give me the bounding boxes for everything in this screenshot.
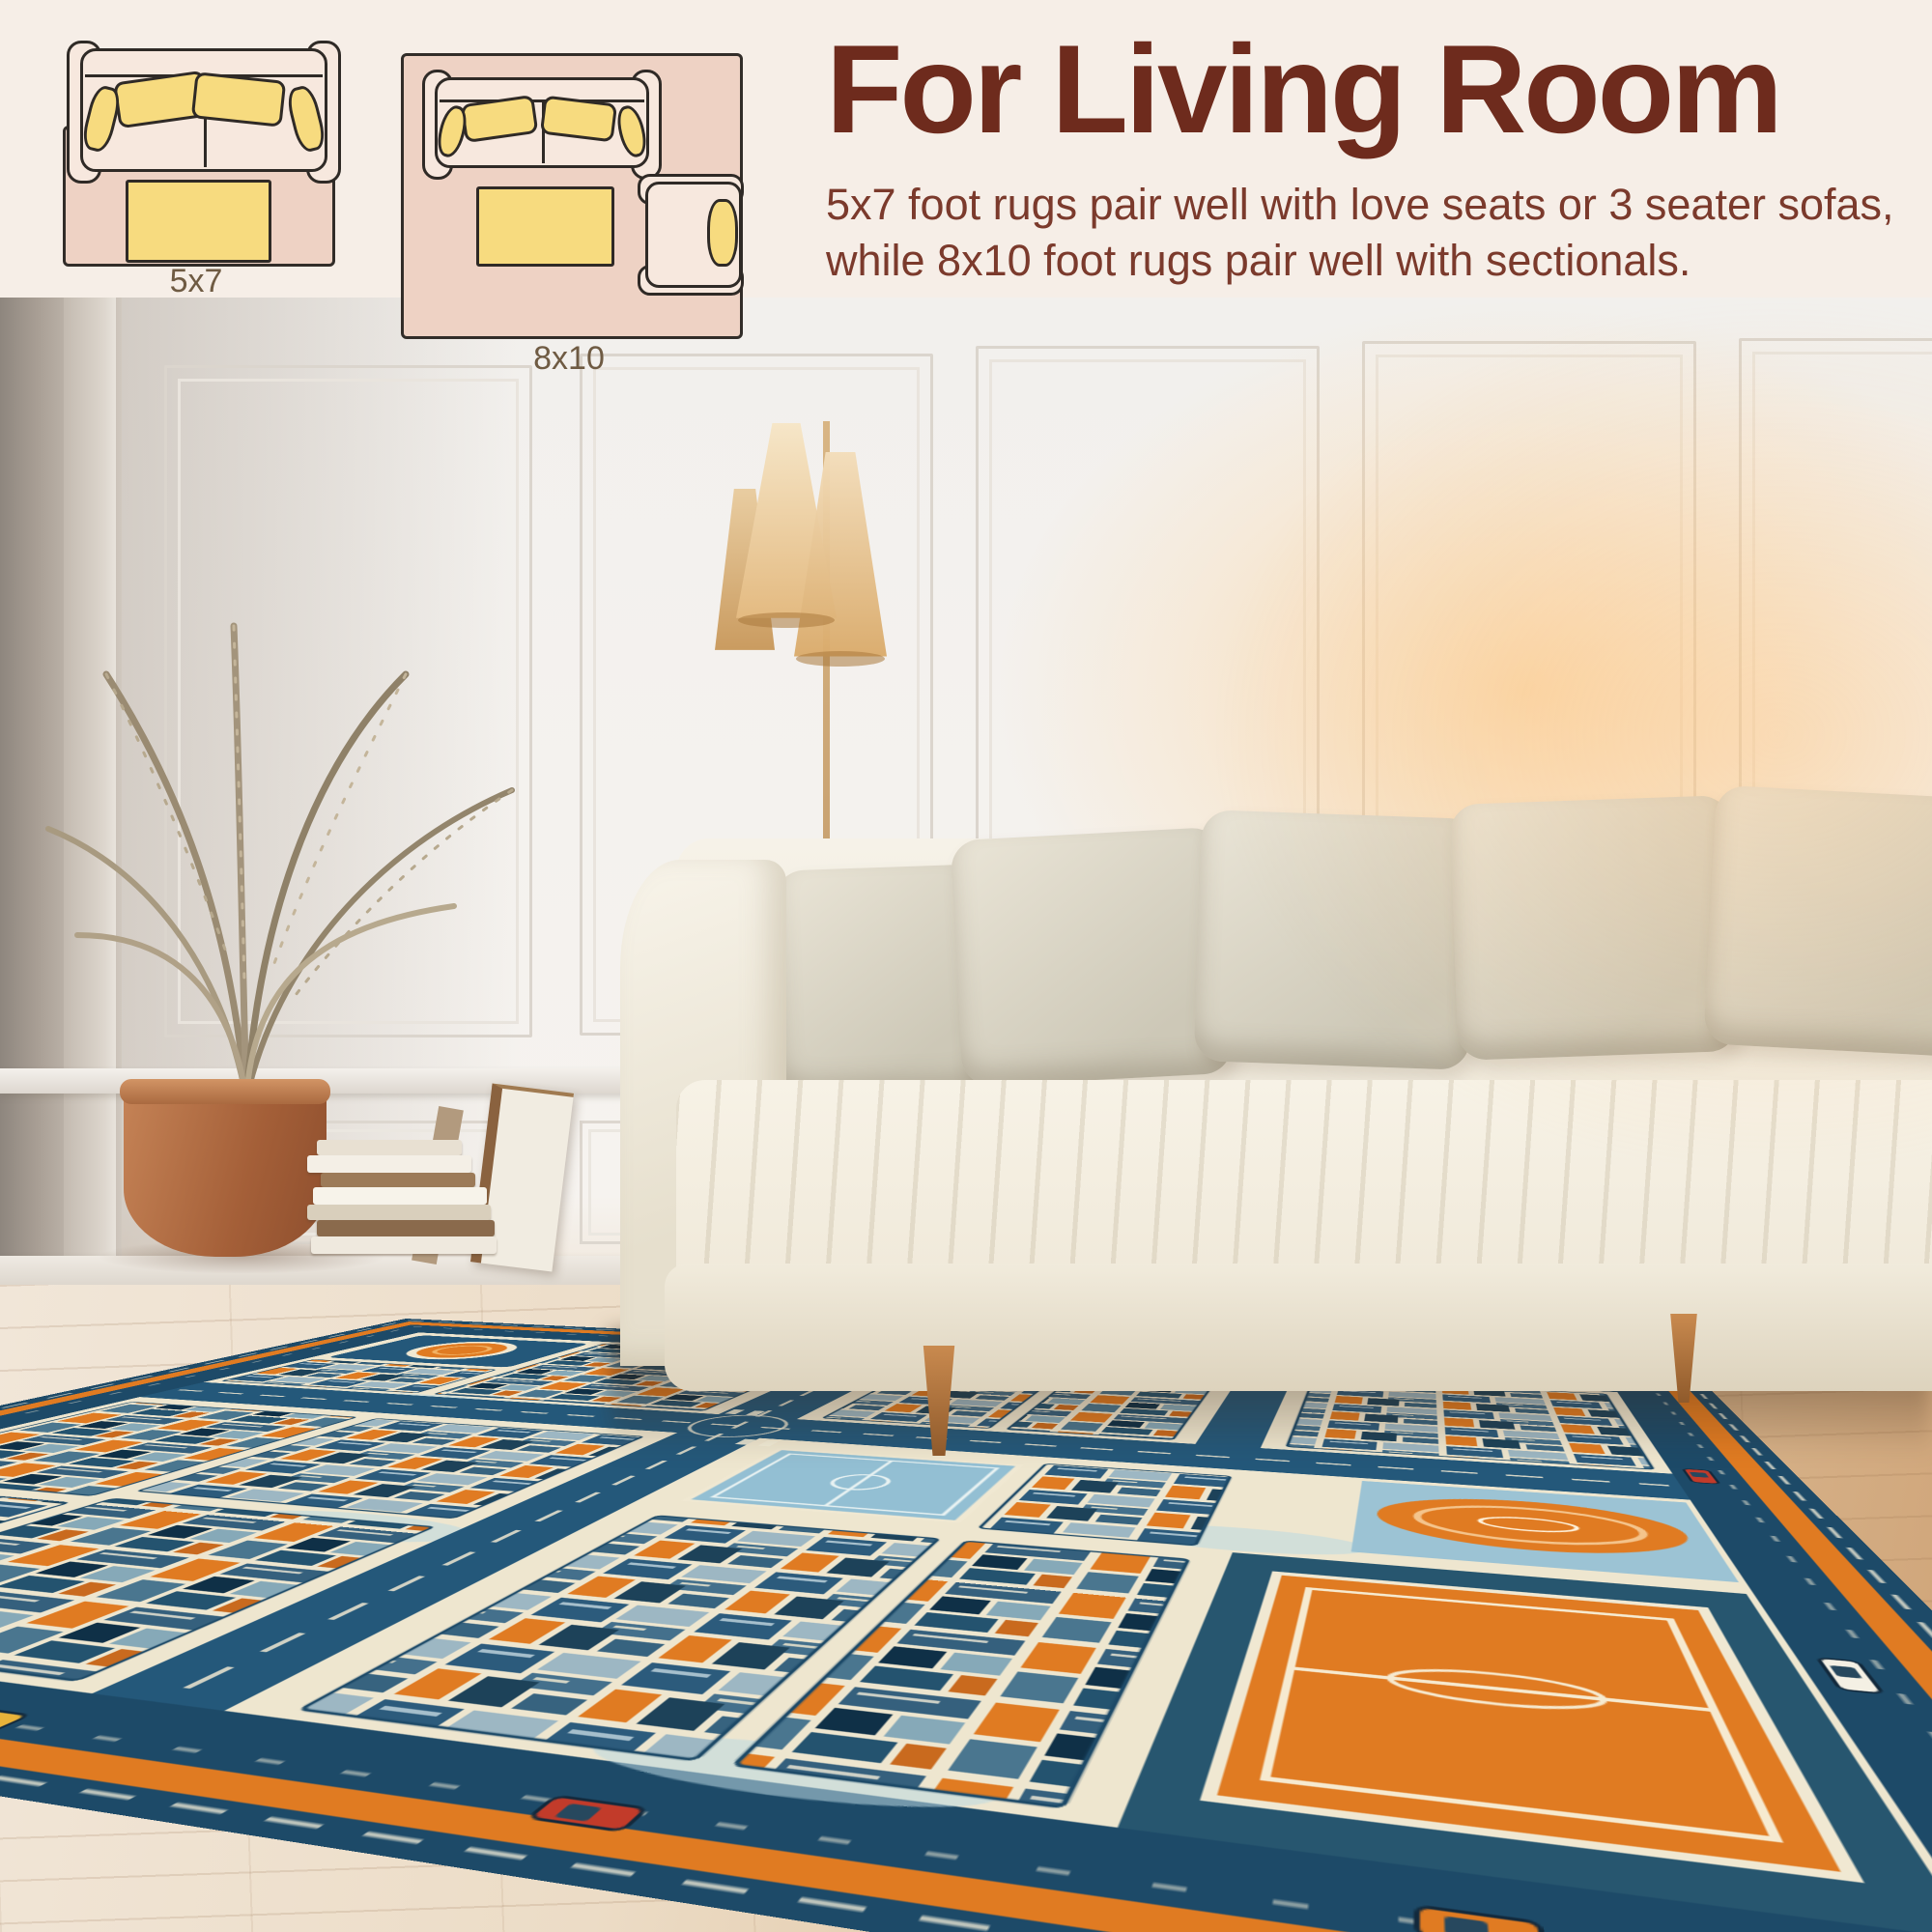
sofa-pillow [1703,785,1932,1059]
lamp-shade-rim [796,651,885,667]
terracotta-pot [124,1085,327,1257]
sofa-pillow [1449,795,1738,1061]
sofa-body [435,77,649,168]
page-title: For Living Room [826,25,1918,154]
pillow [79,83,124,154]
pillow [540,96,617,143]
product-infographic: For Living Room 5x7 foot rugs pair well … [0,0,1932,1932]
pillow [191,71,287,128]
sofa-top-view [435,77,649,168]
pillow [707,199,738,267]
dried-palm-plant [0,520,618,1157]
lamp-shade-rim [738,612,835,628]
sofa-base [665,1264,1932,1391]
sofa-pillow [951,827,1234,1087]
coffee-table-top-view [476,186,614,267]
size-label-5x7: 5x7 [63,263,329,300]
sofa-pillow [1194,810,1478,1070]
coffee-table-top-view [126,180,271,263]
book-stack [307,1140,500,1254]
pillow [284,83,328,154]
armchair-top-view [645,182,742,288]
size-label-8x10: 8x10 [401,340,737,378]
page-description: 5x7 foot rugs pair well with love seats … [826,177,1913,290]
pillow [613,103,650,160]
loveseat-top-view [80,48,327,172]
header: For Living Room 5x7 foot rugs pair well … [826,25,1918,290]
sofa-body [80,48,327,172]
